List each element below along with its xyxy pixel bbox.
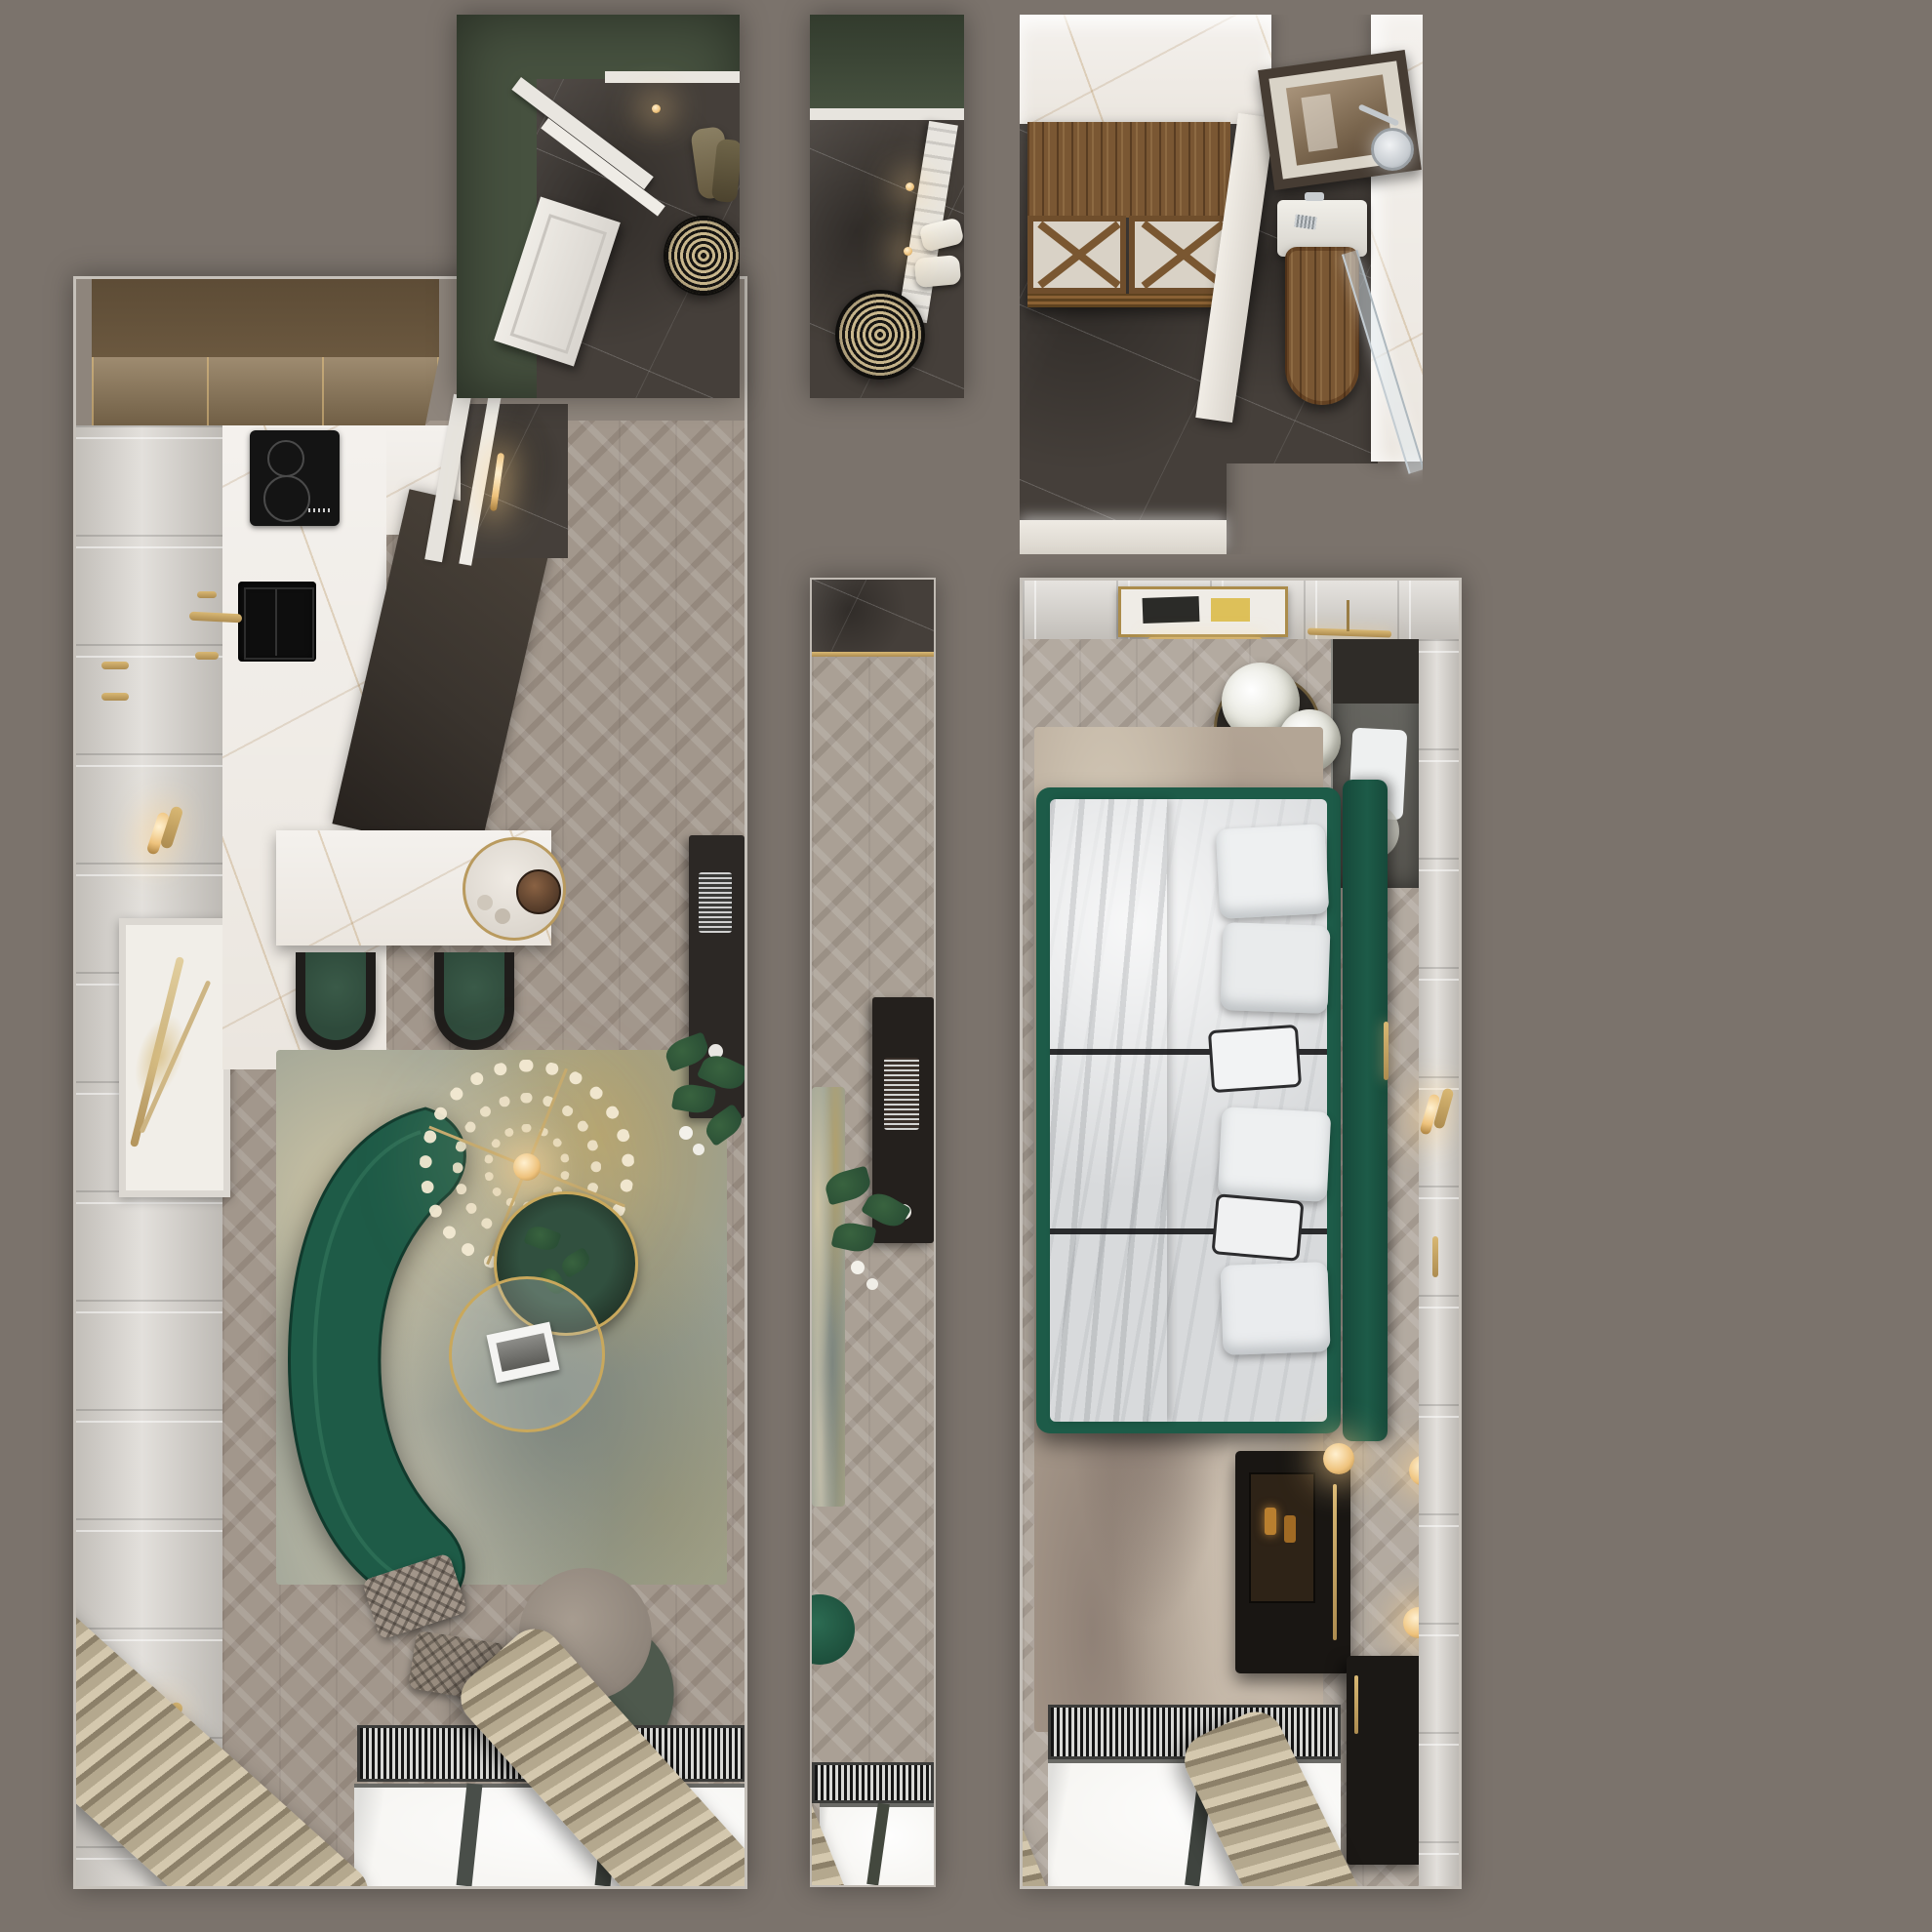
radiator-grille	[812, 1762, 934, 1803]
brass-sconce-icon	[1423, 1088, 1458, 1147]
black-console	[1347, 1656, 1427, 1865]
gold-hook	[904, 247, 912, 256]
wardrobe-knob	[101, 693, 129, 701]
bar-stool	[296, 952, 376, 1050]
bath-wall-top	[1020, 15, 1271, 124]
door-head-trim	[810, 108, 964, 120]
counter-dark-marble-top	[812, 580, 934, 654]
black-sink	[238, 582, 316, 662]
bath-lit-band	[1020, 520, 1227, 554]
pillow	[1220, 1262, 1330, 1355]
green-velvet-headboard	[1343, 780, 1388, 1441]
bath-corridor	[810, 15, 964, 398]
brass-sconce-icon	[152, 806, 191, 865]
white-towel	[914, 255, 961, 288]
bedroom-right-wall	[1419, 639, 1459, 1886]
monstera-plant-icon	[818, 1163, 915, 1309]
bedroom	[1020, 578, 1462, 1889]
bowl-icon	[516, 869, 561, 914]
wardrobe-top-dark	[92, 279, 439, 357]
pillow	[1218, 1107, 1332, 1202]
living-room	[73, 276, 747, 1889]
bed	[1036, 787, 1384, 1433]
entry-hall	[457, 15, 740, 398]
pendant-stem	[1347, 600, 1349, 631]
bathroom	[1020, 15, 1423, 554]
walnut-lattice-cabinet	[1027, 122, 1230, 307]
gold-tap-handle	[195, 652, 219, 660]
wardrobe-knob	[101, 662, 129, 669]
pillow-dark-piped	[1211, 1193, 1304, 1262]
coffee-table-glass	[449, 1276, 605, 1432]
door-architrave	[605, 71, 740, 83]
gold-hook	[906, 182, 914, 191]
lattice-door	[1027, 216, 1126, 294]
gold-hook	[652, 104, 661, 113]
pillow	[1220, 922, 1330, 1014]
patterned-pouf	[664, 216, 740, 296]
gold-tap-handle	[197, 591, 217, 598]
marble-serving-tray	[463, 837, 566, 941]
monstera-plant-icon	[660, 1028, 747, 1175]
pillow-dark-piped	[1208, 1025, 1302, 1093]
headboard-brass-trim	[1384, 1022, 1389, 1080]
living-annex-strip	[810, 578, 936, 1887]
wall-handle	[1432, 1236, 1438, 1277]
pillow	[1216, 824, 1330, 919]
patterned-pouf	[835, 290, 925, 380]
apartment-render	[0, 0, 1932, 1932]
minibar	[1235, 1451, 1350, 1673]
bar-stool	[434, 952, 514, 1050]
wardrobe-top-bronze	[92, 357, 439, 425]
wall-art-gold-frame	[1118, 586, 1288, 637]
wall-hung-toilet	[1271, 200, 1369, 410]
folded-blanket	[1050, 799, 1167, 1422]
green-wall	[810, 15, 964, 108]
induction-hob	[250, 430, 340, 526]
shower-head-icon	[1371, 128, 1414, 171]
glow-wall-lamp	[1323, 1443, 1354, 1474]
feather-wall-art	[119, 918, 230, 1197]
